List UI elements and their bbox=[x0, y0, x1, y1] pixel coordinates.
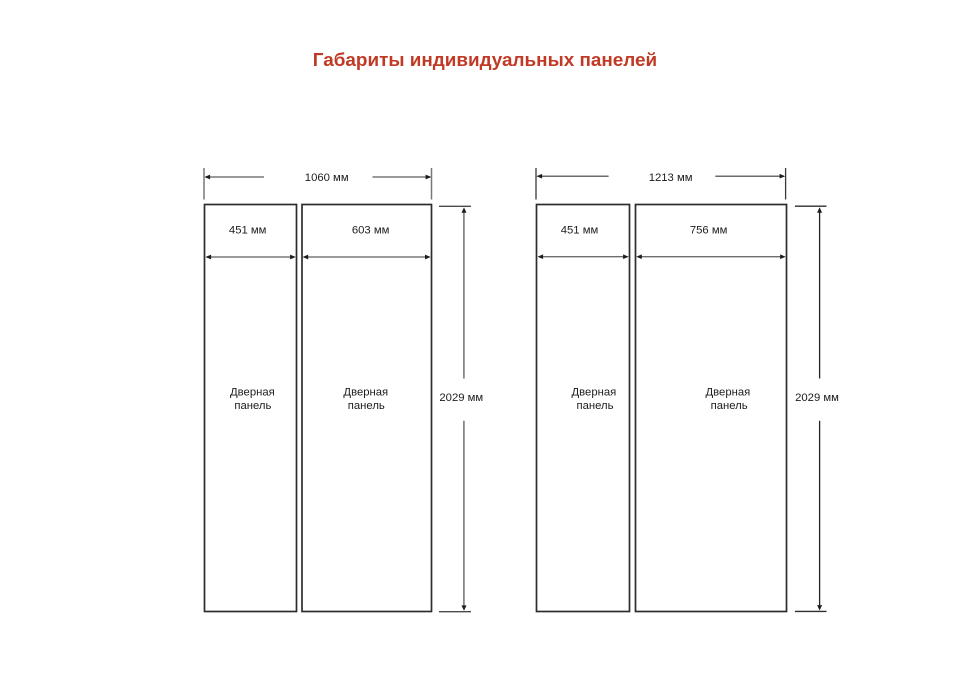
svg-text:панель: панель bbox=[234, 400, 271, 412]
svg-text:2029 мм: 2029 мм bbox=[795, 392, 839, 404]
svg-text:Дверная: Дверная bbox=[572, 386, 617, 398]
svg-text:1060 мм: 1060 мм bbox=[305, 172, 349, 184]
svg-text:451 мм: 451 мм bbox=[561, 224, 599, 236]
svg-text:Дверная: Дверная bbox=[343, 386, 388, 398]
svg-text:603 мм: 603 мм bbox=[352, 224, 390, 236]
svg-text:2029 мм: 2029 мм bbox=[439, 392, 483, 404]
svg-text:панель: панель bbox=[348, 400, 385, 412]
svg-text:панель: панель bbox=[711, 400, 748, 412]
svg-text:756 мм: 756 мм bbox=[690, 225, 728, 237]
svg-text:панель: панель bbox=[576, 400, 613, 412]
svg-text:Дверная: Дверная bbox=[230, 386, 275, 398]
svg-text:Дверная: Дверная bbox=[706, 386, 751, 398]
svg-text:Габариты индивидуальных панеле: Габариты индивидуальных панелей bbox=[313, 50, 657, 71]
svg-text:1213 мм: 1213 мм bbox=[649, 172, 693, 184]
svg-text:451 мм: 451 мм bbox=[229, 224, 267, 236]
